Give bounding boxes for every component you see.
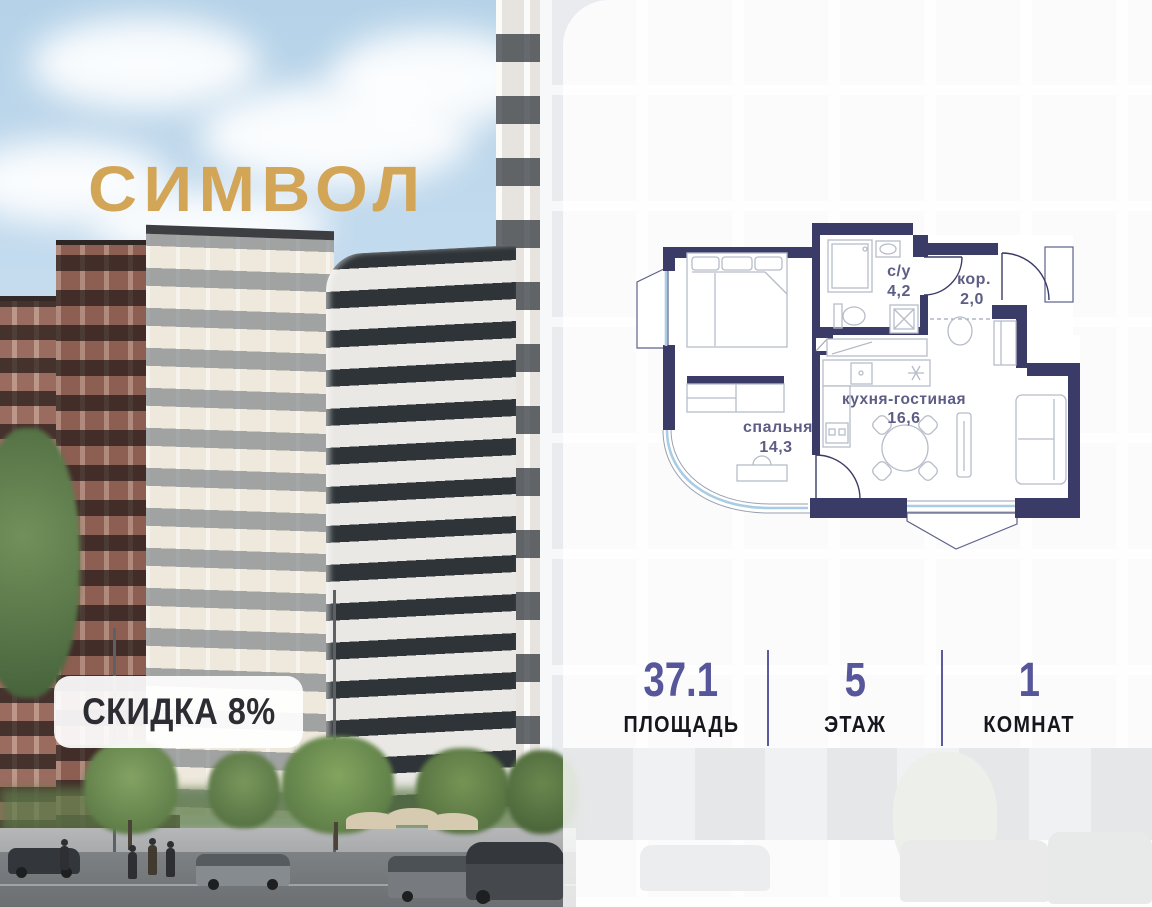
listing-card[interactable]: с/у 4,2 кор. 2,0 кухня-гостиная 16,6 спа…: [0, 0, 1152, 907]
tv-stand: [957, 413, 971, 477]
stat-area: 37.1 ПЛОЩАДЬ: [595, 645, 767, 750]
pedestrian: [60, 846, 69, 870]
room-area-bedroom: 14,3: [759, 439, 792, 456]
room-area-kitchen-living: 16,6: [887, 410, 920, 427]
bed: [687, 253, 787, 347]
balcony: [907, 513, 1017, 549]
stat-rooms-label: КОМНАТ: [983, 711, 1074, 738]
room-label-bathroom: с/у: [887, 263, 911, 280]
room-label-bedroom: спальня: [743, 419, 813, 436]
pedestrian: [128, 852, 137, 879]
room-area-corridor: 2,0: [960, 291, 984, 308]
pedestrian: [166, 848, 175, 877]
stat-rooms: 1 КОМНАТ: [943, 645, 1115, 750]
discount-badge: СКИДКА 8%: [54, 676, 303, 748]
stat-floor-value: 5: [844, 657, 865, 705]
room-area-bathroom: 4,2: [887, 283, 911, 300]
room-label-corridor: кор.: [957, 271, 991, 288]
cloud: [30, 18, 260, 110]
stat-floor: 5 ЭТАЖ: [769, 645, 941, 750]
room-label-kitchen-living: кухня-гостиная: [842, 391, 966, 408]
stat-area-label: ПЛОЩАДЬ: [623, 711, 739, 738]
floor-plan: с/у 4,2 кор. 2,0 кухня-гостиная 16,6 спа…: [620, 215, 1120, 575]
pedestrian: [148, 845, 157, 875]
car-sedan: [196, 854, 290, 886]
car-dark-front: [466, 842, 564, 900]
sink-icon: [876, 241, 900, 257]
tree: [208, 752, 280, 828]
discount-badge-text: СКИДКА 8%: [82, 691, 275, 733]
washing-machine-icon: [890, 305, 918, 333]
car-dark-suv: [8, 848, 80, 874]
info-panel: с/у 4,2 кор. 2,0 кухня-гостиная 16,6 спа…: [563, 0, 1152, 907]
apartment-stats: 37.1 ПЛОЩАДЬ 5 ЭТАЖ 1 КОМНАТ: [595, 645, 1115, 750]
shower-icon: [828, 240, 872, 292]
stat-area-value: 37.1: [644, 657, 719, 705]
sofa: [1016, 395, 1066, 484]
project-logo: СИМВОЛ: [88, 152, 426, 226]
tree-trunk: [334, 822, 338, 850]
cafe-umbrella: [428, 813, 478, 830]
stat-floor-label: ЭТАЖ: [824, 711, 886, 738]
stat-rooms-value: 1: [1018, 657, 1039, 705]
